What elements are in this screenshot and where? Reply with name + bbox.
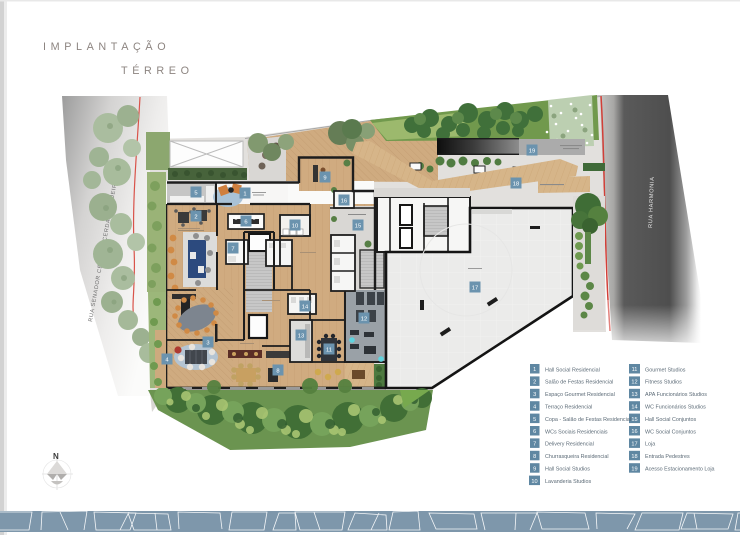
svg-text:8: 8 <box>533 454 536 460</box>
svg-text:Copa - Salão de Festas Residen: Copa - Salão de Festas Residencial <box>545 417 631 423</box>
svg-text:12: 12 <box>631 380 637 386</box>
svg-text:5: 5 <box>533 417 536 423</box>
svg-text:Espaço Gourmet Residencial: Espaço Gourmet Residencial <box>545 392 615 398</box>
svg-text:1: 1 <box>533 367 536 373</box>
svg-text:Salão de Festas Residencial: Salão de Festas Residencial <box>545 380 613 386</box>
svg-text:17: 17 <box>631 442 637 448</box>
svg-text:15: 15 <box>631 417 637 423</box>
svg-text:3: 3 <box>533 392 536 398</box>
svg-text:Delivery Residencial: Delivery Residencial <box>545 442 594 448</box>
svg-text:Lavanderia Studios: Lavanderia Studios <box>545 479 591 485</box>
svg-text:19: 19 <box>631 466 637 472</box>
svg-text:WC Funcionários Studios: WC Funcionários Studios <box>645 405 706 411</box>
svg-text:4: 4 <box>533 404 536 410</box>
svg-text:Churrasqueira Residencial: Churrasqueira Residencial <box>545 454 609 460</box>
svg-text:APA Funcionários Studios: APA Funcionários Studios <box>645 392 707 398</box>
svg-text:13: 13 <box>631 392 637 398</box>
svg-text:18: 18 <box>631 454 637 460</box>
svg-text:Terraço Residencial: Terraço Residencial <box>545 405 592 411</box>
svg-text:Loja: Loja <box>645 442 655 448</box>
svg-text:Fitness Studios: Fitness Studios <box>645 380 682 386</box>
svg-text:2: 2 <box>533 380 536 386</box>
svg-text:Hall Social Conjuntos: Hall Social Conjuntos <box>645 417 697 423</box>
svg-text:Gourmet Studios: Gourmet Studios <box>645 367 686 373</box>
svg-text:9: 9 <box>533 466 536 472</box>
svg-text:7: 7 <box>533 442 536 448</box>
svg-text:6: 6 <box>533 429 536 435</box>
svg-text:WCs Sociais Residenciais: WCs Sociais Residenciais <box>545 429 608 435</box>
svg-text:16: 16 <box>631 429 637 435</box>
svg-text:14: 14 <box>631 404 637 410</box>
svg-text:11: 11 <box>632 367 638 373</box>
svg-text:Hall Social Studios: Hall Social Studios <box>545 467 590 473</box>
svg-text:Acesso Estacionamento Loja: Acesso Estacionamento Loja <box>645 467 715 473</box>
svg-text:Hall Social Residencial: Hall Social Residencial <box>545 367 600 373</box>
svg-text:10: 10 <box>531 479 537 485</box>
svg-text:WC Social Conjuntos: WC Social Conjuntos <box>645 429 696 435</box>
svg-text:Entrada Pedestres: Entrada Pedestres <box>645 454 690 460</box>
